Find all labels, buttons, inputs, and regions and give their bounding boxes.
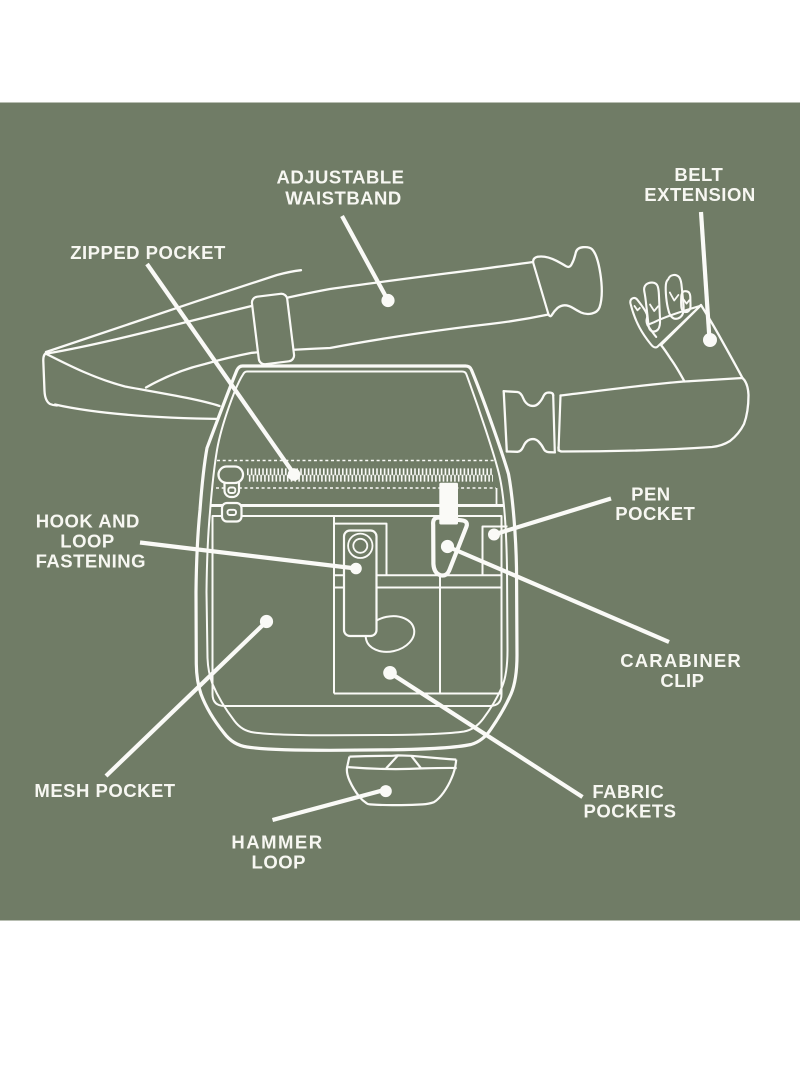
svg-text:LOOP: LOOP [252, 852, 306, 873]
svg-text:ZIPPED POCKET: ZIPPED POCKET [70, 242, 226, 263]
svg-text:ADJUSTABLE: ADJUSTABLE [277, 167, 405, 188]
svg-text:FASTENING: FASTENING [36, 551, 146, 572]
svg-text:POCKET: POCKET [615, 503, 695, 524]
svg-text:LOOP: LOOP [60, 531, 114, 552]
svg-text:EXTENSION: EXTENSION [644, 184, 755, 205]
svg-text:POCKETS: POCKETS [584, 801, 677, 822]
svg-text:MESH POCKET: MESH POCKET [34, 780, 175, 801]
svg-text:WAISTBAND: WAISTBAND [285, 188, 402, 209]
svg-text:HAMMER: HAMMER [231, 832, 323, 853]
svg-text:BELT: BELT [674, 164, 723, 185]
svg-text:FABRIC: FABRIC [592, 781, 664, 802]
svg-text:PEN: PEN [631, 484, 671, 505]
svg-text:HOOK AND: HOOK AND [36, 511, 140, 532]
svg-text:CARABINER: CARABINER [620, 650, 742, 671]
svg-text:CLIP: CLIP [660, 670, 704, 691]
